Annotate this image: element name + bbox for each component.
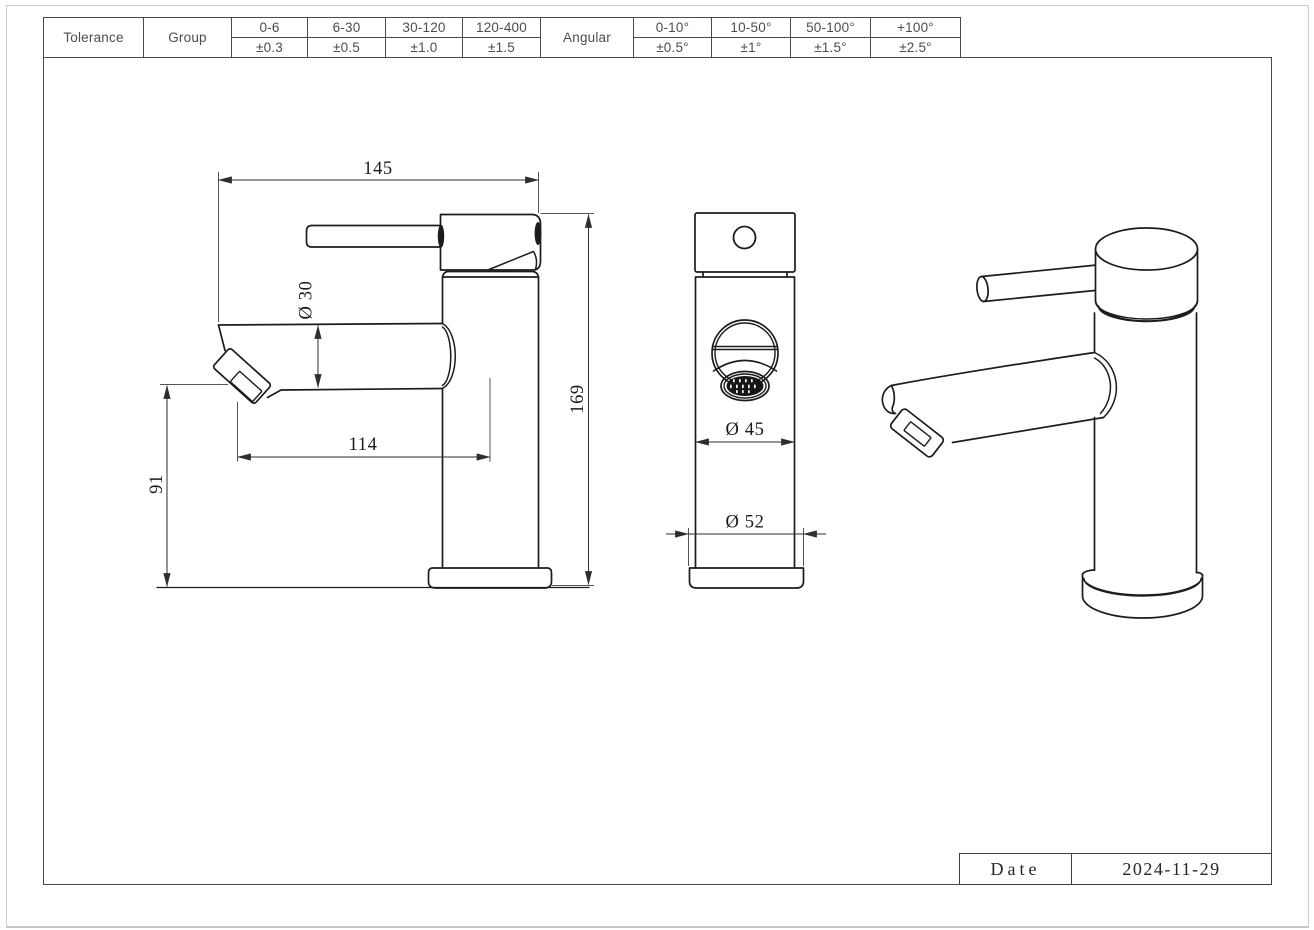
dim-spout-diameter-30: Ø 30: [297, 281, 317, 320]
faucet-drawing: 145 Ø 30 114 91 169 Ø: [0, 0, 1314, 930]
dim-reach-114: 114: [349, 435, 378, 455]
perspective-view-outline: [882, 228, 1202, 618]
dim-base-diameter-52: Ø 52: [726, 513, 765, 533]
front-view-dimension-labels: 145 Ø 30 114 91 169: [147, 159, 588, 494]
date-value: 2024-11-29: [1072, 854, 1271, 884]
dim-height-169: 169: [568, 384, 588, 414]
front-view-outline: [157, 215, 589, 589]
end-view-dimension-labels: Ø 45 Ø 52: [726, 420, 765, 533]
end-view-dimensions: [666, 442, 826, 566]
title-block: Date 2024-11-29: [959, 853, 1272, 885]
dim-spout-height-91: 91: [147, 474, 167, 494]
dim-width-145: 145: [363, 159, 393, 179]
dim-body-diameter-45: Ø 45: [726, 420, 765, 440]
date-label: Date: [960, 854, 1072, 884]
